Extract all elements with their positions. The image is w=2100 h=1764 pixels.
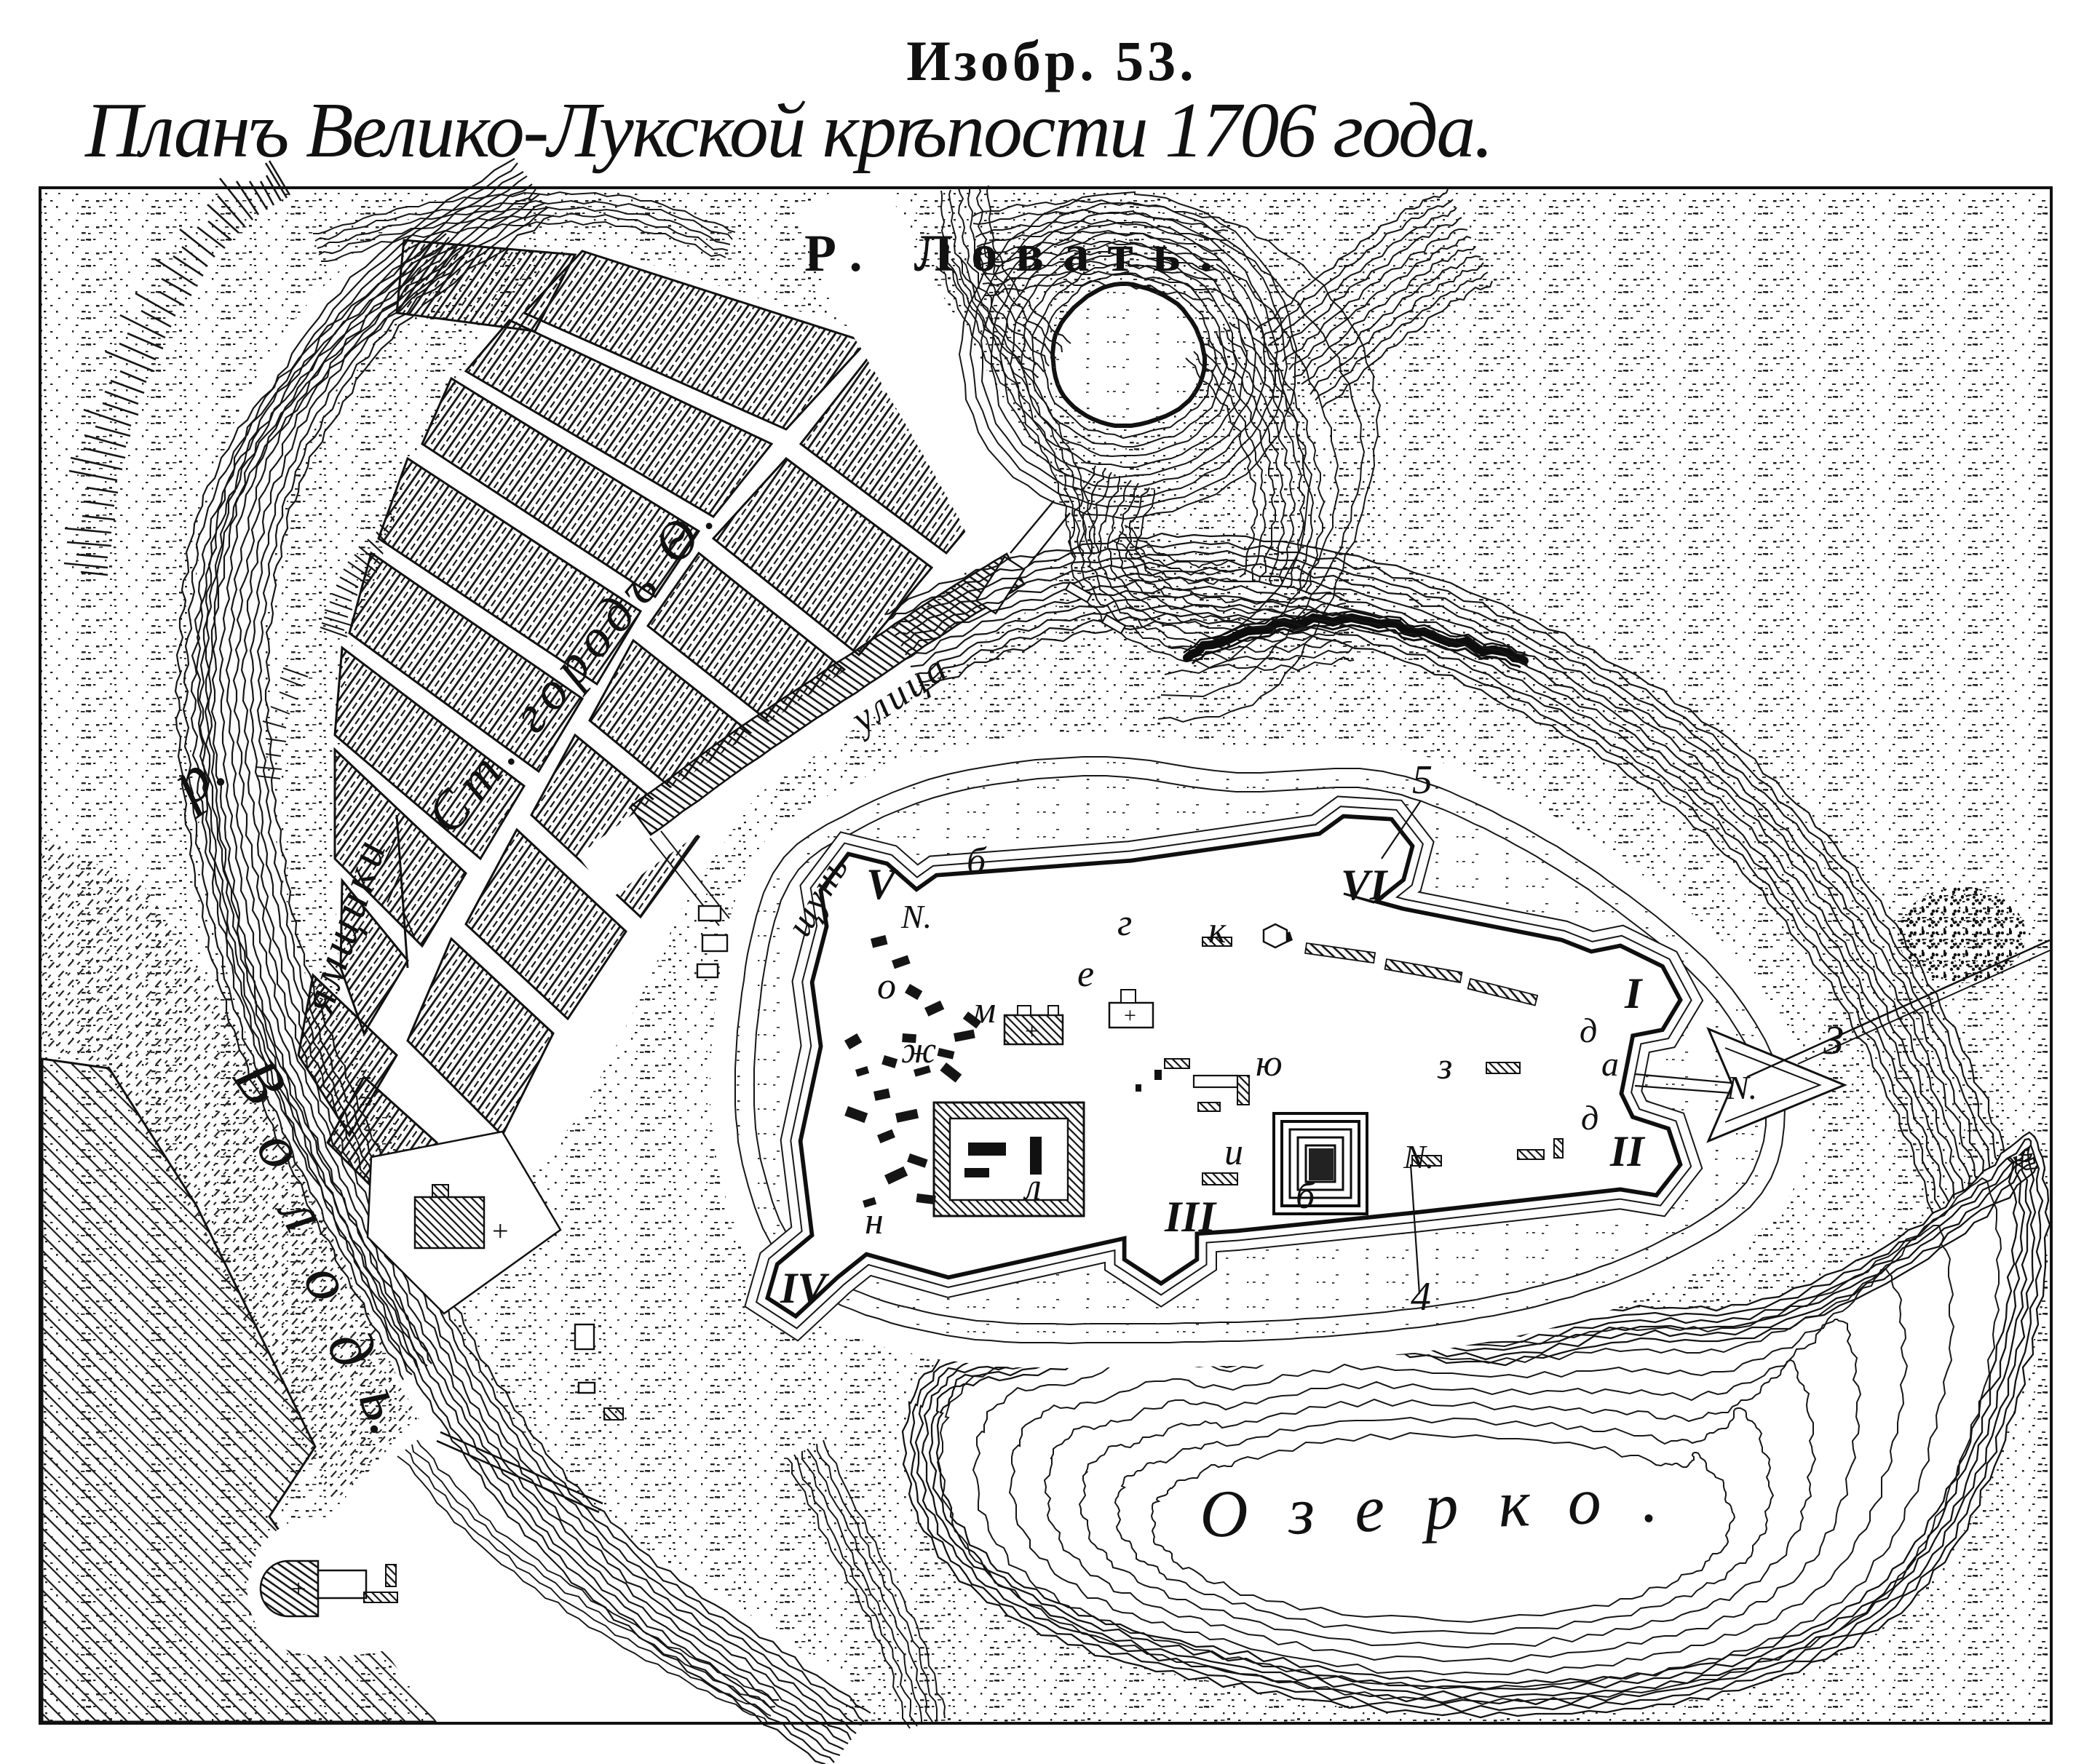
- svg-text:ю: ю: [1256, 1043, 1283, 1084]
- svg-text:+: +: [1124, 1004, 1136, 1028]
- svg-text:N.: N.: [1726, 1069, 1757, 1106]
- svg-text:5: 5: [1412, 758, 1433, 803]
- svg-text:з: з: [1437, 1046, 1452, 1087]
- svg-text:б: б: [967, 841, 987, 882]
- svg-text:+: +: [1025, 1018, 1039, 1045]
- svg-text:III: III: [1164, 1193, 1218, 1241]
- svg-text:д: д: [1581, 1099, 1598, 1137]
- svg-text:е: е: [1077, 953, 1094, 995]
- svg-text:N.: N.: [900, 898, 932, 935]
- svg-text:З: З: [1823, 1018, 1844, 1063]
- svg-text:V: V: [866, 860, 899, 908]
- svg-text:Планъ Велико-Лукской крѣпости: Планъ Велико-Лукской крѣпости 1706 года.: [84, 87, 1494, 174]
- svg-text:г: г: [1117, 902, 1132, 944]
- svg-text:н: н: [865, 1201, 884, 1242]
- svg-text:к: к: [1208, 910, 1227, 951]
- svg-text:ж: ж: [901, 1030, 936, 1071]
- svg-text:4: 4: [1411, 1274, 1431, 1319]
- svg-text:Изобр. 53.: Изобр. 53.: [906, 29, 1197, 92]
- svg-text:+: +: [291, 1574, 306, 1603]
- svg-text:II: II: [1609, 1127, 1646, 1175]
- svg-text:+: +: [492, 1215, 509, 1247]
- svg-text:о: о: [877, 966, 896, 1007]
- svg-text:I: I: [1624, 969, 1644, 1017]
- svg-text:д: д: [1580, 1012, 1597, 1050]
- svg-text:VI: VI: [1341, 861, 1389, 909]
- svg-text:л: л: [1023, 1167, 1042, 1208]
- svg-text:IV: IV: [780, 1264, 830, 1312]
- svg-text:и: и: [1224, 1132, 1243, 1173]
- svg-text:б: б: [1296, 1175, 1316, 1217]
- svg-text:N.: N.: [1403, 1138, 1434, 1175]
- svg-text:а: а: [1601, 1045, 1619, 1084]
- svg-text:м: м: [970, 990, 996, 1031]
